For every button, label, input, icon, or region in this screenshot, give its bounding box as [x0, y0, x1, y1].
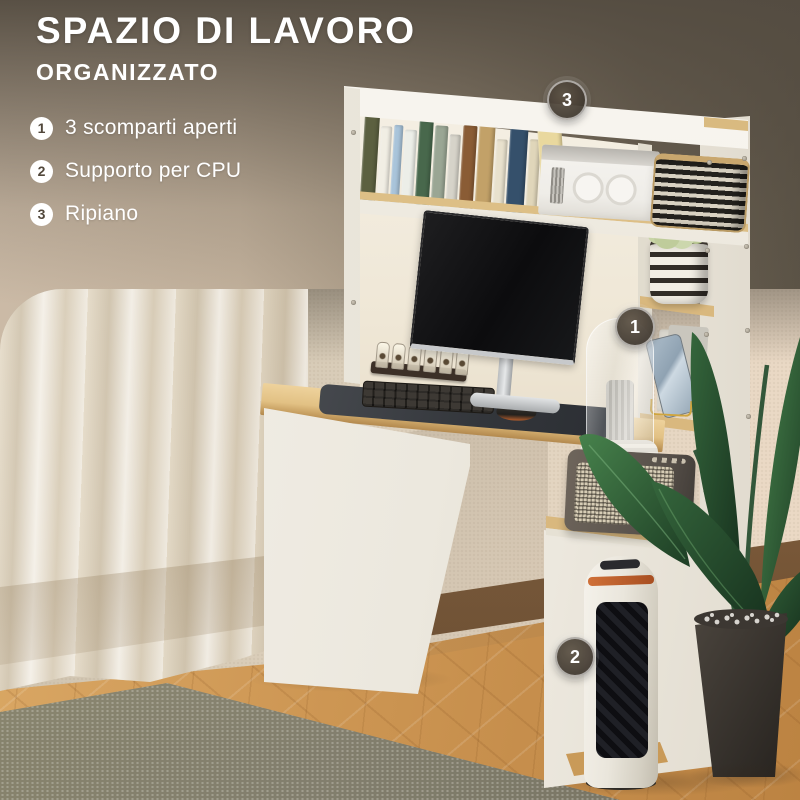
feature-number-badge: 2: [30, 160, 53, 183]
feature-row: 3Ripiano: [30, 202, 241, 226]
photo-marker-1: 1: [615, 307, 655, 347]
page-subtitle: ORGANIZZATO: [36, 59, 416, 86]
photo-marker-3: 3: [547, 80, 587, 120]
page-title: SPAZIO DI LAVORO: [36, 12, 416, 51]
feature-label: Supporto per CPU: [65, 159, 241, 183]
feature-list: 13 scomparti aperti2Supporto per CPU3Rip…: [30, 116, 241, 245]
feature-label: 3 scomparti aperti: [65, 116, 237, 140]
feature-number-badge: 1: [30, 117, 53, 140]
feature-row: 2Supporto per CPU: [30, 159, 241, 183]
feature-label: Ripiano: [65, 202, 138, 226]
feature-number-badge: 3: [30, 203, 53, 226]
photo-marker-2: 2: [555, 637, 595, 677]
feature-row: 13 scomparti aperti: [30, 116, 241, 140]
promo-graphic: 312 SPAZIO DI LAVORO ORGANIZZATO 13 scom…: [0, 0, 800, 800]
header: SPAZIO DI LAVORO ORGANIZZATO: [36, 12, 416, 86]
